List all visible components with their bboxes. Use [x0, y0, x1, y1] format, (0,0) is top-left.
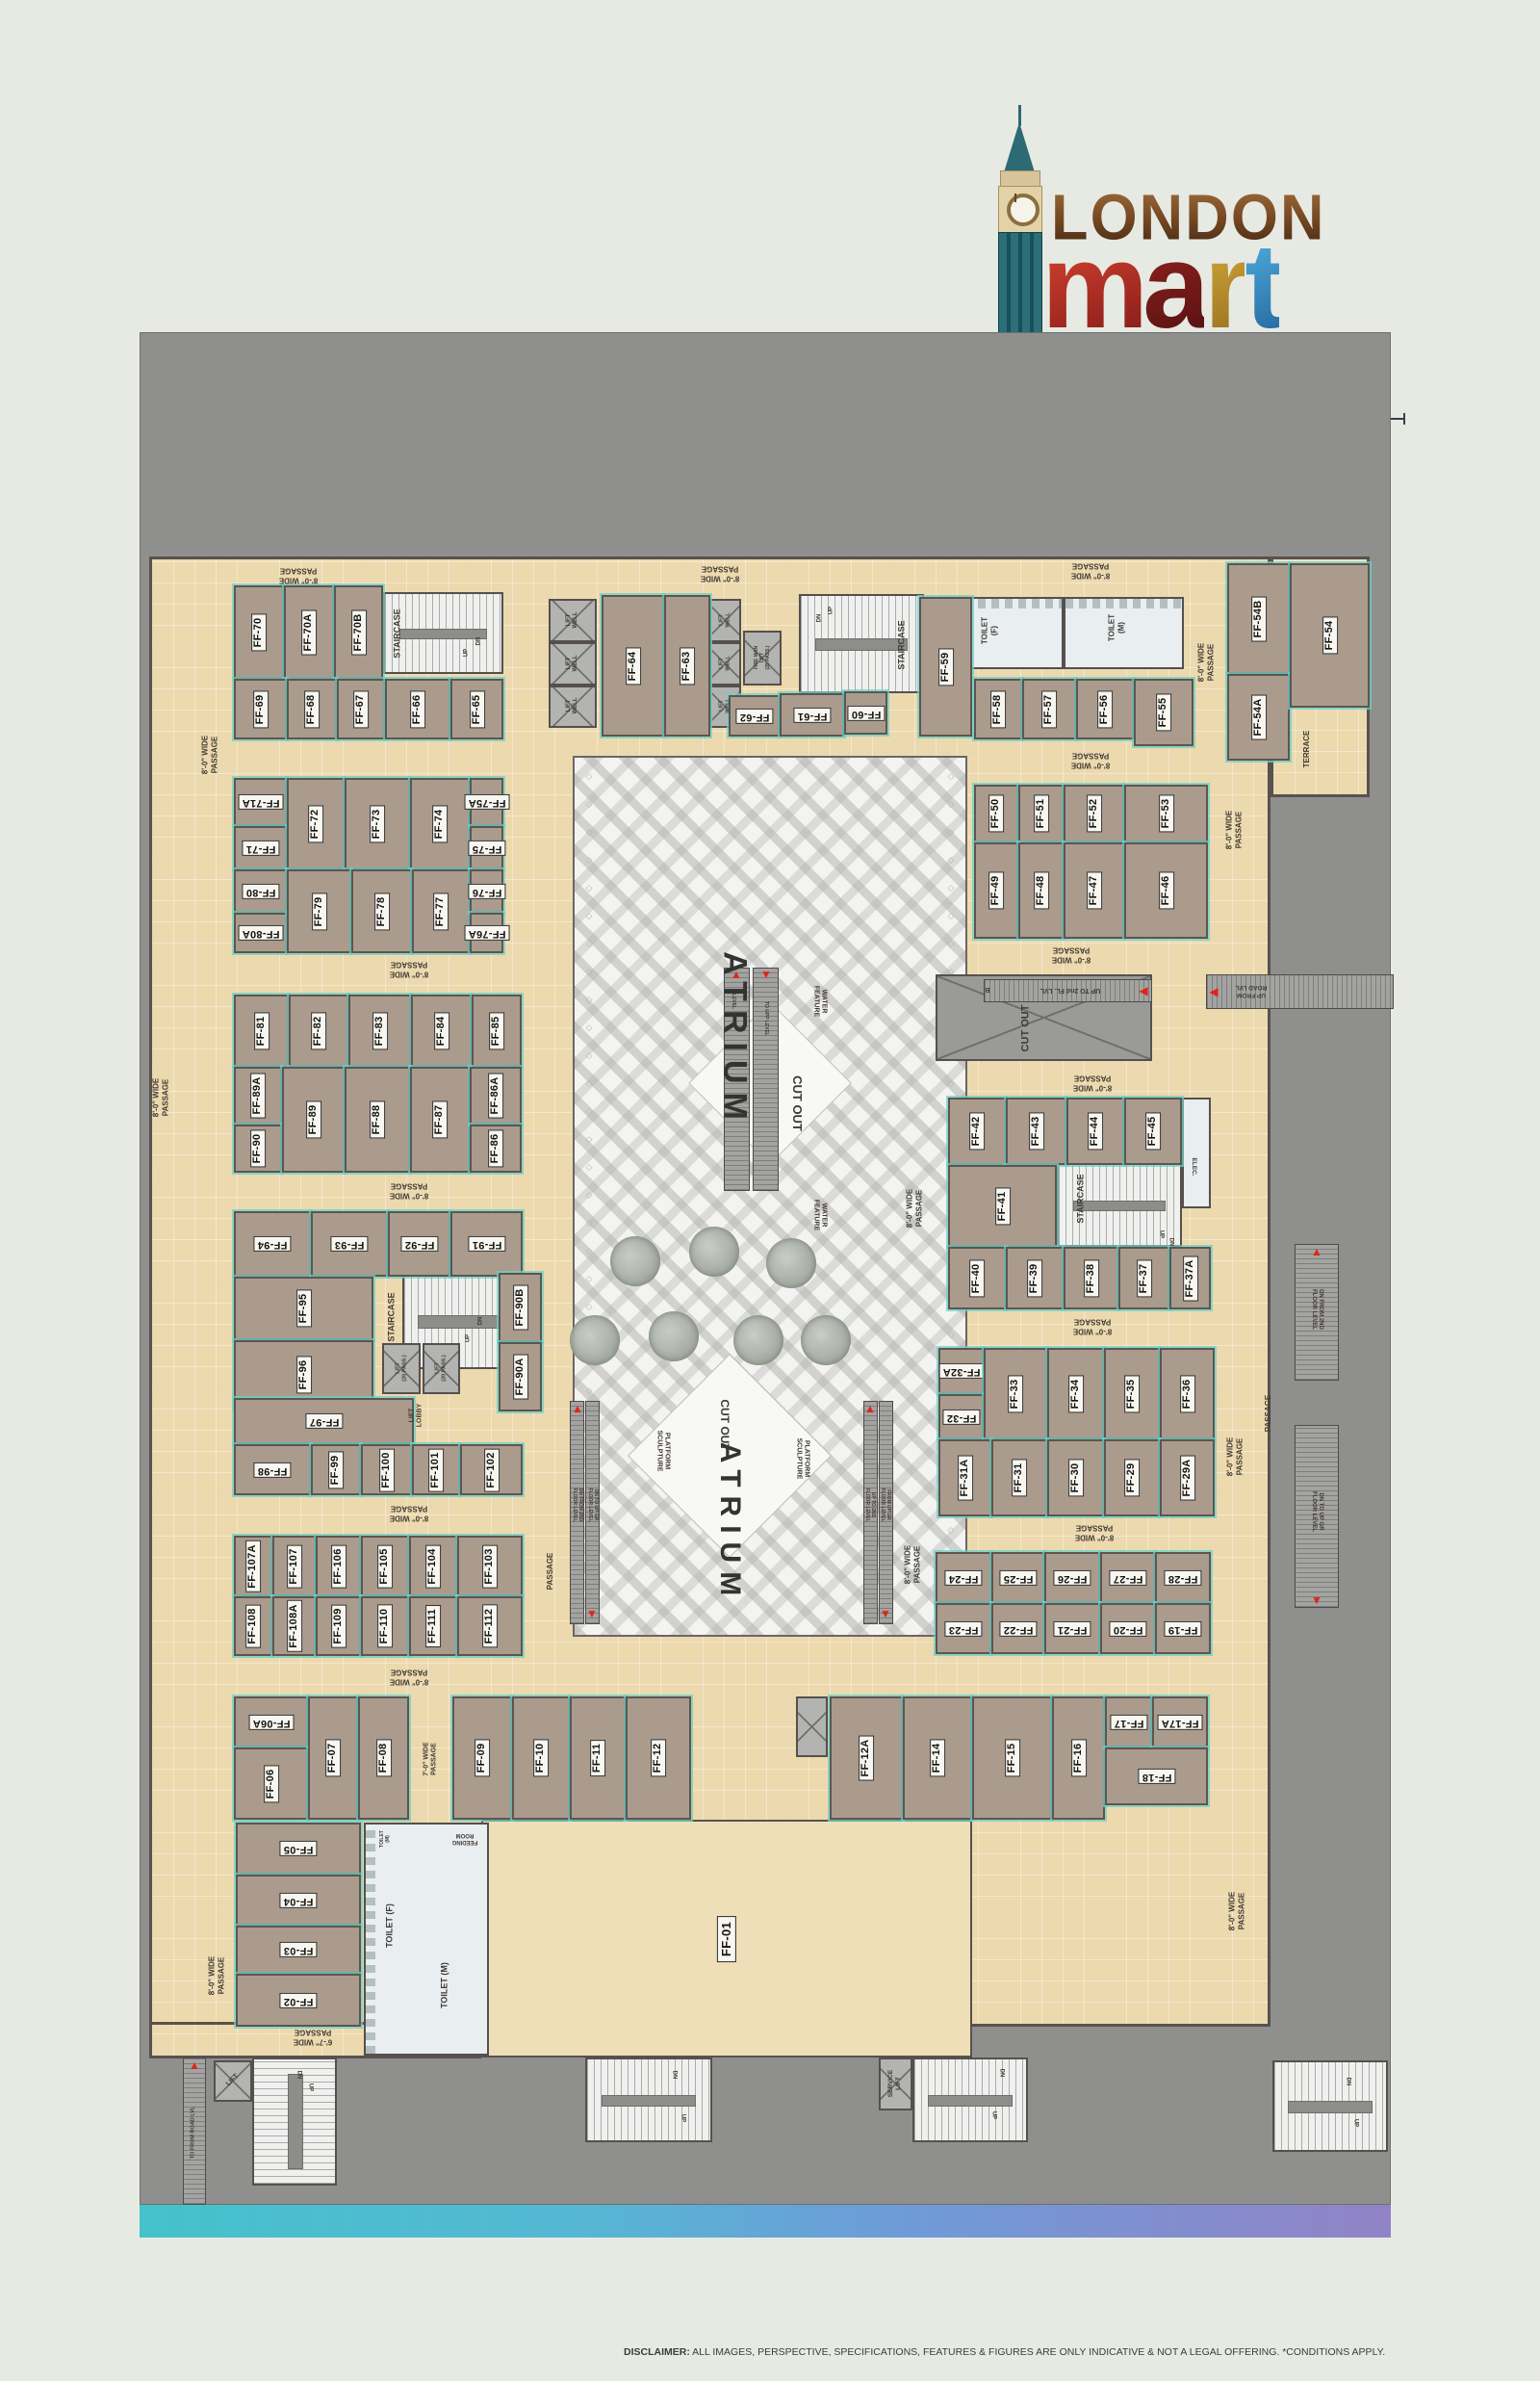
disclaimer-label: DISCLAIMER:	[624, 2346, 690, 2358]
plan-label: LIFT LOBBY	[409, 1404, 425, 1428]
unit-FF-74: FF-74	[410, 778, 470, 869]
unit-FF-50: FF-50	[974, 785, 1018, 842]
unit-FF-80A: FF-80A	[234, 913, 287, 953]
plan-label: UP	[828, 607, 834, 614]
staircase	[1272, 2060, 1388, 2152]
unit-FF-81: FF-81	[234, 995, 289, 1067]
unit-label-FF-90: FF-90	[250, 1130, 266, 1168]
unit-label-FF-97: FF-97	[305, 1413, 343, 1429]
unit-FF-97: FF-97	[234, 1398, 414, 1444]
unit-FF-93: FF-93	[311, 1211, 388, 1277]
unit-FF-55: FF-55	[1134, 679, 1193, 746]
unit-FF-78: FF-78	[351, 869, 412, 953]
plan-label: UP	[1157, 1230, 1164, 1238]
unit-FF-16: FF-16	[1052, 1696, 1105, 1820]
unit-FF-102: FF-102	[460, 1444, 523, 1495]
unit-FF-46: FF-46	[1124, 842, 1208, 939]
unit-FF-35: FF-35	[1104, 1348, 1160, 1439]
unit-FF-108A: FF-108A	[272, 1596, 316, 1656]
unit-label-FF-12A: FF-12A	[859, 1735, 874, 1780]
direction-arrow-icon: ▼	[880, 1608, 891, 1619]
unit-label-FF-68: FF-68	[304, 690, 320, 728]
unit-FF-104: FF-104	[409, 1536, 457, 1596]
unit-FF-82: FF-82	[289, 995, 348, 1067]
plan-label: FEEDING ROOM	[452, 1831, 478, 1845]
plan-label: 8'-0" WIDE PASSAGE	[1071, 751, 1110, 769]
unit-FF-31A: FF-31A	[938, 1439, 991, 1516]
plan-label: 8'-0" WIDE PASSAGE	[701, 564, 739, 582]
unit-FF-70: FF-70	[234, 585, 284, 679]
unit-label-FF-80: FF-80	[242, 884, 279, 899]
unit-FF-47: FF-47	[1064, 842, 1124, 939]
plan-label: ATRIUM	[712, 1442, 747, 1604]
unit-label-FF-44: FF-44	[1088, 1113, 1103, 1151]
plan-label: UP FROM ROAD LVL	[1236, 983, 1268, 998]
unit-FF-15: FF-15	[972, 1696, 1052, 1820]
plan-label: DN	[1167, 1238, 1173, 1247]
unit-label-FF-82: FF-82	[311, 1012, 326, 1049]
unit-FF-51: FF-51	[1018, 785, 1064, 842]
unit-FF-73: FF-73	[345, 778, 410, 869]
unit-FF-17: FF-17	[1105, 1696, 1152, 1747]
unit-label-FF-19: FF-19	[1165, 1621, 1202, 1637]
unit-FF-45: FF-45	[1124, 1098, 1182, 1165]
unit-FF-100: FF-100	[361, 1444, 412, 1495]
unit-label-FF-06: FF-06	[264, 1765, 279, 1802]
unit-label-FF-11: FF-11	[590, 1740, 605, 1776]
big-ben-icon	[991, 105, 1049, 365]
unit-FF-04: FF-04	[236, 1875, 361, 1926]
unit-label-FF-93: FF-93	[331, 1236, 369, 1252]
unit-FF-43: FF-43	[1006, 1098, 1066, 1165]
plan-label: LIFT WELL	[566, 656, 579, 672]
unit-label-FF-23: FF-23	[945, 1621, 983, 1637]
tree-icon	[689, 1227, 739, 1277]
unit-FF-111: FF-111	[409, 1596, 457, 1656]
plan-label: 8'-0" WIDE PASSAGE	[1075, 1523, 1114, 1541]
unit-label-FF-01: FF-01	[717, 1915, 736, 1961]
plan-label: STAIRCASE	[897, 620, 908, 669]
unit-FF-37: FF-37	[1118, 1247, 1169, 1309]
unit-label-FF-72: FF-72	[308, 805, 323, 842]
plan-label: TO UPP LEVEL	[763, 1001, 769, 1036]
unit-FF-19: FF-19	[1155, 1603, 1211, 1654]
plan-label: DN FROM 2ND FLOOR LEVEL	[572, 1488, 583, 1522]
unit-FF-61: FF-61	[780, 693, 844, 737]
disclaimer-text: DISCLAIMER: ALL IMAGES, PERSPECTIVE, SPE…	[624, 2346, 1423, 2358]
plan-label: LIFT WELL	[566, 612, 579, 629]
unit-label-FF-17A: FF-17A	[1157, 1715, 1202, 1730]
unit-FF-28: FF-28	[1155, 1552, 1211, 1603]
unit-FF-90B: FF-90B	[499, 1273, 542, 1342]
unit-FF-70A: FF-70A	[284, 585, 334, 679]
unit-label-FF-89: FF-89	[306, 1101, 321, 1139]
unit-FF-70B: FF-70B	[334, 585, 383, 679]
plan-label: UP	[465, 1334, 472, 1342]
plan-label: UP	[306, 2083, 313, 2091]
unit-label-FF-41: FF-41	[995, 1187, 1011, 1225]
unit-FF-76: FF-76	[470, 869, 503, 913]
unit-label-FF-61: FF-61	[793, 708, 831, 723]
unit-label-FF-32A: FF-32A	[938, 1363, 984, 1379]
unit-FF-23: FF-23	[936, 1603, 991, 1654]
unit-FF-94: FF-94	[234, 1211, 311, 1277]
unit-label-FF-09: FF-09	[475, 1740, 490, 1777]
plan-label: ELEC.	[1190, 1157, 1197, 1176]
unit-label-FF-71: FF-71	[242, 841, 279, 856]
plan-label: DN FROM 2ND FLOOR LEVEL	[1310, 1289, 1323, 1330]
unit-label-FF-69: FF-69	[253, 690, 269, 728]
unit-label-FF-53: FF-53	[1159, 795, 1174, 833]
unit-label-FF-111: FF-111	[425, 1605, 441, 1647]
unit-label-FF-12: FF-12	[651, 1740, 666, 1777]
unit-FF-79: FF-79	[287, 869, 351, 953]
unit-FF-108: FF-108	[234, 1596, 272, 1656]
unit-label-FF-99: FF-99	[328, 1451, 344, 1488]
unit-label-FF-83: FF-83	[372, 1012, 388, 1049]
unit-FF-69: FF-69	[234, 679, 287, 739]
unit-FF-66: FF-66	[385, 679, 450, 739]
unit-label-FF-56: FF-56	[1097, 690, 1113, 728]
unit-label-FF-54B: FF-54B	[1251, 596, 1267, 641]
unit-label-FF-32: FF-32	[942, 1410, 980, 1425]
plan-label: 8'-0" WIDE PASSAGE	[151, 1078, 169, 1117]
unit-FF-101: FF-101	[412, 1444, 460, 1495]
unit-label-FF-103: FF-103	[482, 1544, 498, 1588]
unit-FF-06A: FF-06A	[234, 1696, 308, 1747]
unit-label-FF-38: FF-38	[1084, 1259, 1099, 1297]
unit-label-FF-22: FF-22	[999, 1621, 1037, 1637]
unit-label-FF-66: FF-66	[410, 690, 425, 728]
plan-label: 8'-0" WIDE PASSAGE	[905, 1189, 923, 1228]
direction-arrow-icon: ▼	[586, 1608, 598, 1619]
unit-label-FF-112: FF-112	[482, 1605, 498, 1648]
unit-label-FF-84: FF-84	[434, 1012, 449, 1049]
unit-label-FF-18: FF-18	[1138, 1769, 1175, 1784]
unit-FF-11: FF-11	[570, 1696, 626, 1820]
plan-label: TERRACE	[1302, 731, 1312, 768]
unit-label-FF-39: FF-39	[1027, 1259, 1042, 1297]
plan-label: 8'-0" WIDE PASSAGE	[390, 1181, 428, 1200]
plan-label: TOILET (F)	[385, 1903, 396, 1948]
plan-label: 8'-0" WIDE PASSAGE	[1224, 811, 1243, 849]
unit-label-FF-73: FF-73	[370, 805, 385, 842]
unit-label-FF-57: FF-57	[1041, 690, 1057, 728]
unit-label-FF-102: FF-102	[484, 1448, 500, 1491]
unit-label-FF-81: FF-81	[254, 1012, 269, 1049]
unit-label-FF-21: FF-21	[1054, 1621, 1091, 1637]
unit-label-FF-43: FF-43	[1029, 1113, 1044, 1151]
plan-label: DN	[1344, 2078, 1350, 2086]
unit-label-FF-108A: FF-108A	[287, 1600, 302, 1652]
tree-icon	[649, 1311, 699, 1361]
unit-label-FF-28: FF-28	[1165, 1570, 1202, 1586]
unit-label-FF-20: FF-20	[1109, 1621, 1146, 1637]
lift	[796, 1696, 828, 1757]
unit-FF-64: FF-64	[602, 595, 664, 737]
unit-FF-110: FF-110	[361, 1596, 409, 1656]
plan-label: TO FROM ROAD LVL	[191, 2107, 197, 2160]
tree-icon	[733, 1315, 783, 1365]
unit-label-FF-76: FF-76	[468, 884, 505, 899]
plan-label: DN TO UP GR FLOOR LEVEL	[587, 1488, 599, 1522]
unit-label-FF-80A: FF-80A	[238, 925, 283, 941]
plan-label: UP TO 2ND FLOOR LEVEL	[864, 1488, 876, 1522]
unit-FF-05: FF-05	[236, 1823, 361, 1875]
plan-label: PASSAGE	[1264, 1395, 1273, 1433]
unit-label-FF-37A: FF-37A	[1183, 1255, 1198, 1301]
unit-FF-01: FF-01	[481, 1820, 972, 2057]
unit-label-FF-70: FF-70	[251, 613, 267, 651]
unit-label-FF-63: FF-63	[680, 647, 695, 685]
unit-label-FF-101: FF-101	[428, 1448, 444, 1491]
unit-FF-76A: FF-76A	[470, 913, 503, 953]
unit-label-FF-54: FF-54	[1322, 617, 1338, 655]
plan-label: PLATFORM SCULPTURE	[654, 1431, 671, 1472]
tree-icon	[570, 1315, 620, 1365]
plan-label: 8'-0" WIDE PASSAGE	[1225, 1437, 1244, 1476]
unit-FF-09: FF-09	[452, 1696, 512, 1820]
unit-label-FF-04: FF-04	[280, 1893, 318, 1908]
unit-FF-02: FF-02	[236, 1974, 361, 2027]
plan-label: TOILET (M)	[1107, 614, 1125, 641]
direction-arrow-icon: ◀	[1139, 985, 1147, 996]
unit-FF-36: FF-36	[1160, 1348, 1215, 1439]
unit-label-FF-87: FF-87	[432, 1101, 448, 1139]
unit-FF-54: FF-54	[1290, 563, 1370, 708]
plan-label: 8'-0" WIDE PASSAGE	[1227, 1892, 1245, 1930]
unit-label-FF-31: FF-31	[1012, 1460, 1027, 1497]
unit-FF-25: FF-25	[991, 1552, 1044, 1603]
plan-label: 8'-0" WIDE PASSAGE	[390, 960, 428, 978]
staircase	[585, 2057, 712, 2142]
unit-FF-12: FF-12	[626, 1696, 691, 1820]
unit-FF-103: FF-103	[457, 1536, 523, 1596]
unit-label-FF-42: FF-42	[969, 1113, 985, 1151]
toilet-area	[364, 1823, 489, 2056]
unit-label-FF-36: FF-36	[1180, 1375, 1195, 1412]
unit-FF-87: FF-87	[410, 1067, 470, 1173]
unit-FF-07: FF-07	[308, 1696, 358, 1820]
unit-FF-24: FF-24	[936, 1552, 991, 1603]
unit-FF-21: FF-21	[1044, 1603, 1100, 1654]
unit-label-FF-55: FF-55	[1156, 694, 1171, 732]
unit-FF-72: FF-72	[287, 778, 345, 869]
unit-FF-33: FF-33	[984, 1348, 1047, 1439]
unit-label-FF-98: FF-98	[254, 1462, 292, 1478]
unit-label-FF-07: FF-07	[325, 1740, 341, 1777]
unit-label-FF-15: FF-15	[1005, 1740, 1020, 1777]
unit-label-FF-78: FF-78	[374, 893, 390, 930]
plan-label: 8'-0" WIDE PASSAGE	[1073, 1317, 1112, 1335]
plan-label: UP	[679, 2114, 685, 2122]
direction-arrow-icon: ▼	[1311, 1594, 1322, 1606]
unit-FF-32: FF-32	[938, 1394, 984, 1439]
plan-label: 8'-0" WIDE PASSAGE	[903, 1545, 921, 1584]
unit-label-FF-92: FF-92	[400, 1236, 438, 1252]
unit-FF-106: FF-106	[316, 1536, 361, 1596]
unit-FF-62: FF-62	[729, 695, 780, 737]
unit-label-FF-76A: FF-76A	[464, 925, 509, 941]
unit-label-FF-26: FF-26	[1054, 1570, 1091, 1586]
unit-FF-53: FF-53	[1124, 785, 1208, 842]
unit-label-FF-29A: FF-29A	[1180, 1455, 1195, 1500]
unit-label-FF-89A: FF-89A	[250, 1073, 266, 1118]
staircase	[912, 2057, 1028, 2142]
unit-FF-90A: FF-90A	[499, 1342, 542, 1411]
unit-label-FF-08: FF-08	[376, 1740, 392, 1777]
unit-FF-95: FF-95	[234, 1277, 373, 1340]
unit-FF-107A: FF-107A	[234, 1536, 272, 1596]
unit-label-FF-27: FF-27	[1109, 1570, 1146, 1586]
unit-FF-18: FF-18	[1105, 1747, 1208, 1805]
plan-label: UP	[1351, 2119, 1358, 2127]
plan-label: LEVEL	[731, 994, 736, 1009]
unit-label-FF-49: FF-49	[988, 872, 1004, 910]
unit-label-FF-86: FF-86	[488, 1130, 503, 1168]
unit-label-FF-88: FF-88	[370, 1101, 385, 1139]
unit-label-FF-24: FF-24	[945, 1570, 983, 1586]
unit-label-FF-58: FF-58	[990, 690, 1006, 728]
plan-label: STAIRCASE	[387, 1292, 398, 1341]
unit-label-FF-85: FF-85	[489, 1012, 504, 1049]
unit-label-FF-48: FF-48	[1034, 872, 1049, 910]
unit-label-FF-47: FF-47	[1087, 872, 1102, 910]
unit-label-FF-104: FF-104	[425, 1544, 441, 1588]
plan-label: 8'-0" WIDE PASSAGE	[279, 566, 318, 584]
unit-label-FF-70B: FF-70B	[351, 609, 367, 655]
unit-FF-08: FF-08	[358, 1696, 409, 1820]
tree-icon	[801, 1315, 851, 1365]
unit-label-FF-03: FF-03	[280, 1942, 318, 1957]
unit-FF-86: FF-86	[470, 1125, 522, 1173]
plan-label: ATRIUM	[715, 951, 755, 1128]
plan-label: DN	[816, 614, 823, 623]
unit-FF-32A: FF-32A	[938, 1348, 984, 1394]
unit-FF-29A: FF-29A	[1160, 1439, 1215, 1516]
plan-label: B	[985, 985, 989, 993]
unit-FF-89A: FF-89A	[234, 1067, 282, 1125]
plan-label: LIFT (20 PASS.)	[434, 1355, 447, 1381]
plan-label: CUT OUT	[1019, 1005, 1032, 1052]
unit-FF-68: FF-68	[287, 679, 337, 739]
unit-FF-65: FF-65	[450, 679, 503, 739]
unit-FF-63: FF-63	[664, 595, 710, 737]
unit-label-FF-46: FF-46	[1159, 872, 1174, 910]
unit-FF-57: FF-57	[1022, 679, 1076, 739]
unit-FF-85: FF-85	[472, 995, 522, 1067]
unit-FF-38: FF-38	[1064, 1247, 1118, 1309]
plan-label: LIFT WELL	[718, 612, 731, 628]
tree-icon	[766, 1238, 816, 1288]
plan-label: 8'-0" WIDE PASSAGE	[207, 1956, 225, 1995]
unit-FF-52: FF-52	[1064, 785, 1124, 842]
unit-FF-88: FF-88	[345, 1067, 410, 1173]
unit-FF-44: FF-44	[1066, 1098, 1124, 1165]
plan-label: UP TO 2nd FL. LVL	[1040, 986, 1101, 994]
plan-label: 8'-0" WIDE PASSAGE	[1196, 643, 1215, 682]
unit-label-FF-95: FF-95	[296, 1290, 312, 1328]
plan-label: SERVICE LIFT	[887, 2070, 903, 2097]
unit-FF-98: FF-98	[234, 1444, 311, 1495]
unit-FF-26: FF-26	[1044, 1552, 1100, 1603]
unit-label-FF-90B: FF-90B	[513, 1284, 528, 1330]
unit-label-FF-90A: FF-90A	[513, 1354, 528, 1399]
unit-label-FF-91: FF-91	[468, 1236, 505, 1252]
plan-label: TOILET (M)	[440, 1962, 450, 2008]
escalator	[1206, 974, 1394, 1009]
unit-label-FF-94: FF-94	[254, 1236, 292, 1252]
plan-label: FIRE MAN LIFT (25 PASS.)	[754, 646, 771, 670]
unit-FF-29: FF-29	[1104, 1439, 1160, 1516]
unit-label-FF-70A: FF-70A	[301, 609, 317, 655]
unit-FF-31: FF-31	[991, 1439, 1047, 1516]
unit-label-FF-02: FF-02	[280, 1993, 318, 2008]
page: LONDON mart MALLAMENITIESRETAILTRADE GRE…	[0, 0, 1540, 2381]
service-room	[1182, 1098, 1211, 1208]
unit-FF-71A: FF-71A	[234, 778, 287, 826]
unit-FF-20: FF-20	[1100, 1603, 1155, 1654]
unit-FF-107: FF-107	[272, 1536, 316, 1596]
unit-label-FF-64: FF-64	[626, 647, 641, 685]
unit-label-FF-108: FF-108	[245, 1604, 261, 1647]
unit-FF-27: FF-27	[1100, 1552, 1155, 1603]
unit-label-FF-106: FF-106	[331, 1544, 346, 1588]
direction-arrow-icon: ▲	[189, 2059, 200, 2071]
tree-icon	[610, 1236, 660, 1286]
unit-FF-109: FF-109	[316, 1596, 361, 1656]
unit-FF-54A: FF-54A	[1227, 674, 1290, 761]
plan-label: DN	[477, 1317, 484, 1326]
unit-FF-34: FF-34	[1047, 1348, 1104, 1439]
unit-FF-17A: FF-17A	[1152, 1696, 1208, 1747]
plan-label: STAIRCASE	[1076, 1174, 1087, 1223]
unit-label-FF-54A: FF-54A	[1251, 694, 1267, 739]
unit-FF-58: FF-58	[974, 679, 1022, 739]
unit-label-FF-96: FF-96	[296, 1357, 312, 1394]
direction-arrow-icon: ▲	[1311, 1246, 1322, 1257]
unit-FF-77: FF-77	[412, 869, 470, 953]
unit-label-FF-45: FF-45	[1145, 1113, 1161, 1151]
unit-label-FF-50: FF-50	[988, 795, 1004, 833]
unit-label-FF-75: FF-75	[468, 841, 505, 856]
plan-label: TOILET (F)	[980, 617, 998, 644]
unit-FF-39: FF-39	[1006, 1247, 1064, 1309]
unit-FF-41: FF-41	[948, 1165, 1057, 1247]
plan-label: UP	[989, 2111, 996, 2119]
unit-label-FF-105: FF-105	[377, 1544, 393, 1588]
plan-label: LIFT WELL	[718, 698, 731, 713]
unit-label-FF-107: FF-107	[287, 1544, 302, 1588]
plan-label: DN	[997, 2069, 1004, 2078]
plan-label: 8'-0" WIDE PASSAGE	[390, 1668, 428, 1686]
plan-label: 8'-0" WIDE PASSAGE	[390, 1504, 428, 1522]
unit-label-FF-107A: FF-107A	[245, 1540, 261, 1592]
unit-FF-92: FF-92	[388, 1211, 450, 1277]
unit-label-FF-51: FF-51	[1034, 795, 1049, 833]
unit-FF-90: FF-90	[234, 1125, 282, 1173]
unit-FF-71: FF-71	[234, 826, 287, 869]
unit-FF-22: FF-22	[991, 1603, 1044, 1654]
unit-label-FF-33: FF-33	[1008, 1375, 1023, 1412]
unit-label-FF-65: FF-65	[470, 690, 485, 728]
unit-FF-56: FF-56	[1076, 679, 1134, 739]
unit-FF-89: FF-89	[282, 1067, 345, 1173]
unit-FF-12A: FF-12A	[830, 1696, 903, 1820]
toilet-area	[962, 597, 1064, 669]
plan-label: 6'-7" WIDE PASSAGE	[294, 2028, 332, 2046]
plan-label: FROM UP GR FLOOR LEVEL	[880, 1488, 891, 1522]
